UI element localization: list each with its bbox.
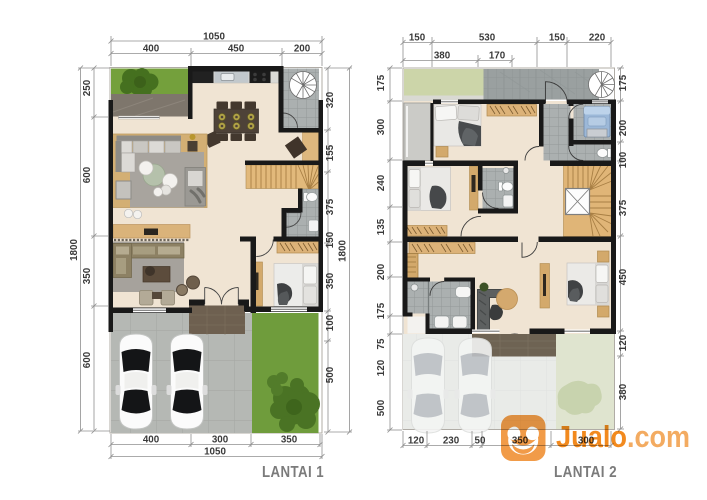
svg-text:120: 120 [618,334,629,351]
svg-text:450: 450 [618,268,629,285]
svg-text:400: 400 [143,435,160,446]
svg-text:50: 50 [475,436,486,447]
svg-text:120: 120 [376,359,387,376]
svg-text:200: 200 [376,263,387,280]
svg-text:.com: .com [627,419,690,454]
svg-text:220: 220 [589,33,606,44]
svg-text:450: 450 [228,44,245,55]
svg-text:600: 600 [82,351,93,368]
svg-text:500: 500 [325,366,336,383]
svg-text:150: 150 [549,33,566,44]
svg-text:1050: 1050 [204,447,226,458]
svg-text:120: 120 [408,436,425,447]
svg-text:200: 200 [294,44,311,55]
svg-text:380: 380 [618,383,629,400]
svg-text:75: 75 [376,338,387,349]
svg-text:150: 150 [409,33,426,44]
svg-text:150: 150 [325,231,336,248]
svg-text:100: 100 [618,151,629,168]
svg-text:250: 250 [82,79,93,96]
svg-text:300: 300 [376,118,387,135]
svg-text:320: 320 [325,91,336,108]
svg-text:175: 175 [376,302,387,319]
svg-text:350: 350 [82,267,93,284]
svg-text:100: 100 [325,314,336,331]
svg-text:1800: 1800 [69,239,80,261]
svg-text:530: 530 [479,33,496,44]
svg-text:350: 350 [281,435,298,446]
svg-text:600: 600 [82,166,93,183]
svg-text:175: 175 [618,74,629,91]
svg-text:200: 200 [618,119,629,136]
svg-text:230: 230 [443,436,460,447]
svg-text:375: 375 [618,199,629,216]
svg-text:170: 170 [489,51,506,62]
svg-text:LANTAI 2: LANTAI 2 [554,464,617,481]
svg-text:375: 375 [325,198,336,215]
svg-text:LANTAI 1: LANTAI 1 [262,464,324,481]
svg-text:1800: 1800 [338,240,349,262]
svg-text:350: 350 [325,272,336,289]
svg-text:Jualo: Jualo [556,419,627,454]
svg-text:300: 300 [212,435,229,446]
svg-text:500: 500 [376,399,387,416]
svg-text:1050: 1050 [203,32,225,43]
svg-text:240: 240 [376,174,387,191]
svg-text:175: 175 [376,74,387,91]
svg-text:400: 400 [143,44,160,55]
svg-text:380: 380 [434,51,451,62]
svg-text:155: 155 [325,144,336,161]
svg-text:135: 135 [376,218,387,235]
